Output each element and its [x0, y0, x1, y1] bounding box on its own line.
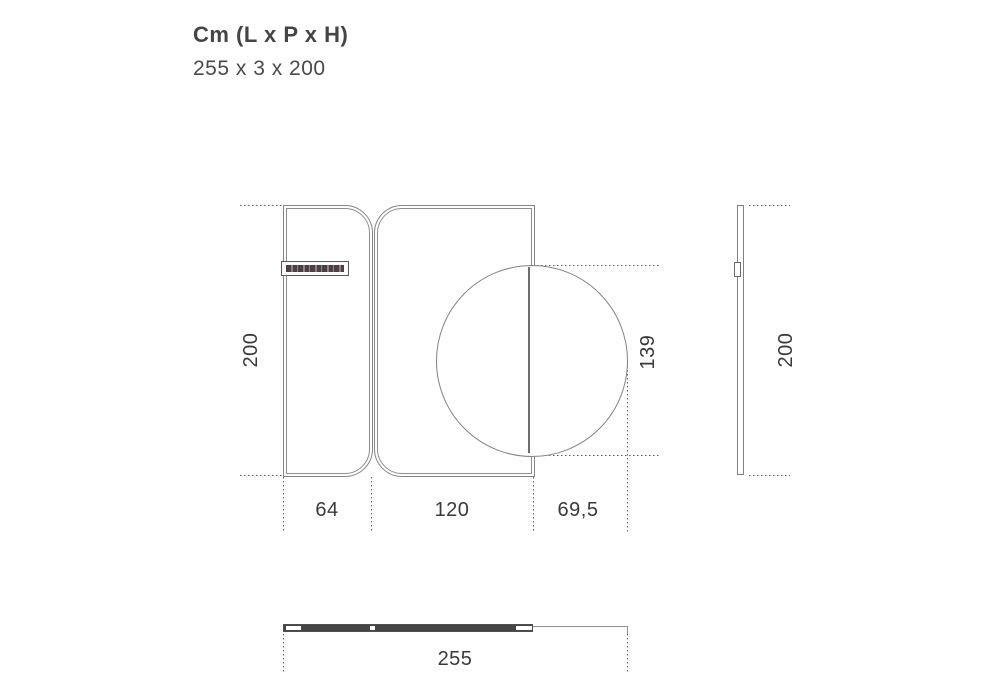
extension-line-disc-right [627, 362, 628, 532]
page-title: Cm (L x P x H) [193, 22, 348, 48]
dim-label-right-panel-width: 120 [420, 498, 484, 522]
top-view-right-corner-tick [627, 626, 628, 634]
top-view-right-tag [516, 626, 532, 630]
drawing-header: Cm (L x P x H) 255 x 3 x 200 [193, 22, 348, 82]
extension-line-top-view-left [283, 634, 284, 672]
round-disc [436, 265, 628, 457]
extension-line-bottom-left [240, 475, 284, 476]
dim-label-half-disc-width: 69,5 [546, 498, 610, 522]
dim-label-side-height: 200 [774, 318, 798, 382]
extension-line-side-top [749, 205, 790, 206]
top-view-left-tag [286, 626, 301, 630]
top-view-hinge-gap [370, 626, 375, 630]
technical-drawing-page: Cm (L x P x H) 255 x 3 x 200 200 64 120 … [0, 0, 1000, 700]
overall-size-text: 255 x 3 x 200 [193, 56, 348, 82]
brand-tag-text-smudge [286, 265, 344, 272]
extension-line-top-left [240, 205, 284, 206]
extension-line-disc-bottom [537, 455, 661, 456]
dim-label-disc-diameter: 139 [636, 320, 660, 384]
extension-line-side-bottom [749, 475, 790, 476]
extension-line-top-view-right [627, 634, 628, 672]
side-brand-tag-profile [734, 262, 741, 277]
front-left-panel [283, 205, 373, 477]
extension-line-x0 [283, 477, 284, 532]
dim-label-total-width: 255 [423, 647, 487, 671]
extension-line-x184 [533, 477, 534, 532]
side-panel-profile [737, 205, 744, 475]
disc-chord-line [528, 267, 530, 453]
extension-line-disc-top [537, 265, 661, 266]
dim-label-left-panel-width: 64 [295, 498, 359, 522]
dim-label-front-height: 200 [239, 318, 263, 382]
brand-tag [281, 261, 349, 276]
extension-line-x64 [371, 477, 372, 532]
top-view-panels-bar [283, 624, 533, 632]
top-view-disc-edge-line [533, 626, 628, 627]
